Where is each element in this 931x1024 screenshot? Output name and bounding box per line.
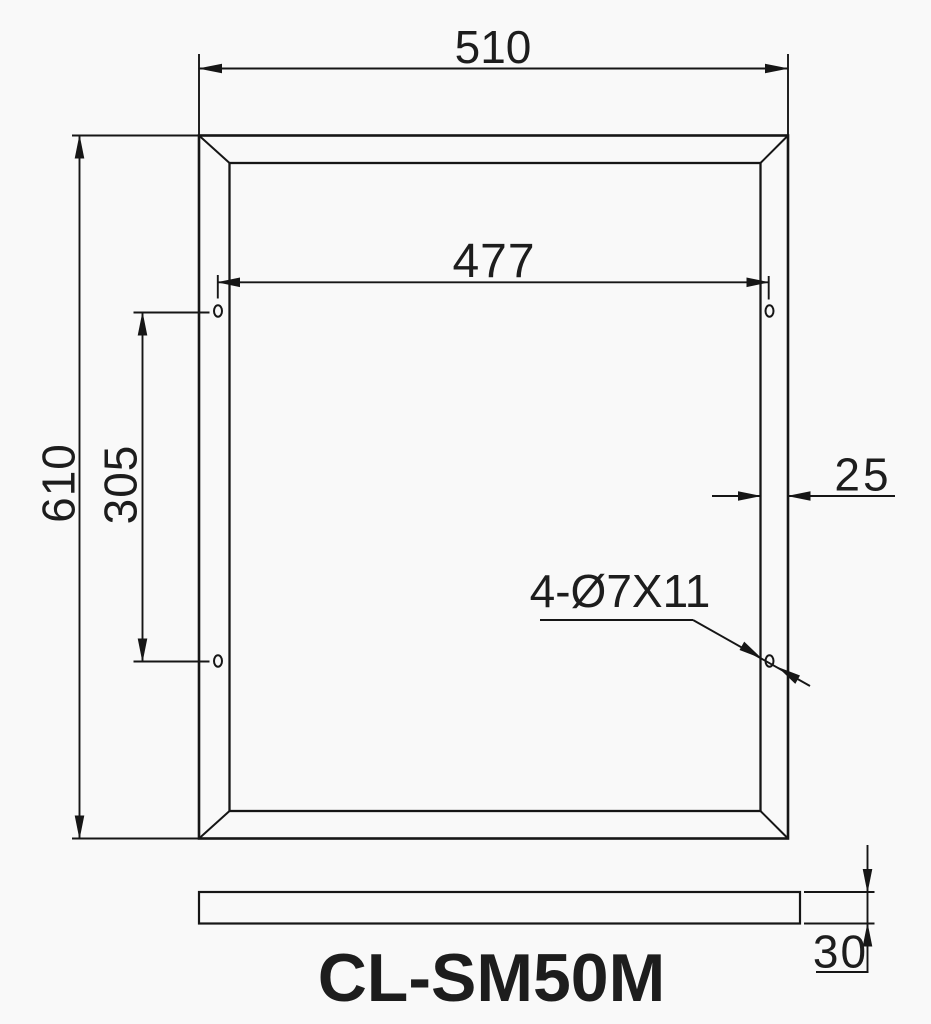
svg-text:305: 305 [95,445,147,525]
svg-text:CL-SM50M: CL-SM50M [318,940,666,1016]
svg-text:4-Ø7X11: 4-Ø7X11 [530,565,711,617]
svg-text:610: 610 [33,443,85,523]
svg-text:510: 510 [455,21,532,73]
svg-text:25: 25 [834,449,891,501]
svg-text:30: 30 [813,926,868,978]
svg-text:477: 477 [452,235,535,288]
